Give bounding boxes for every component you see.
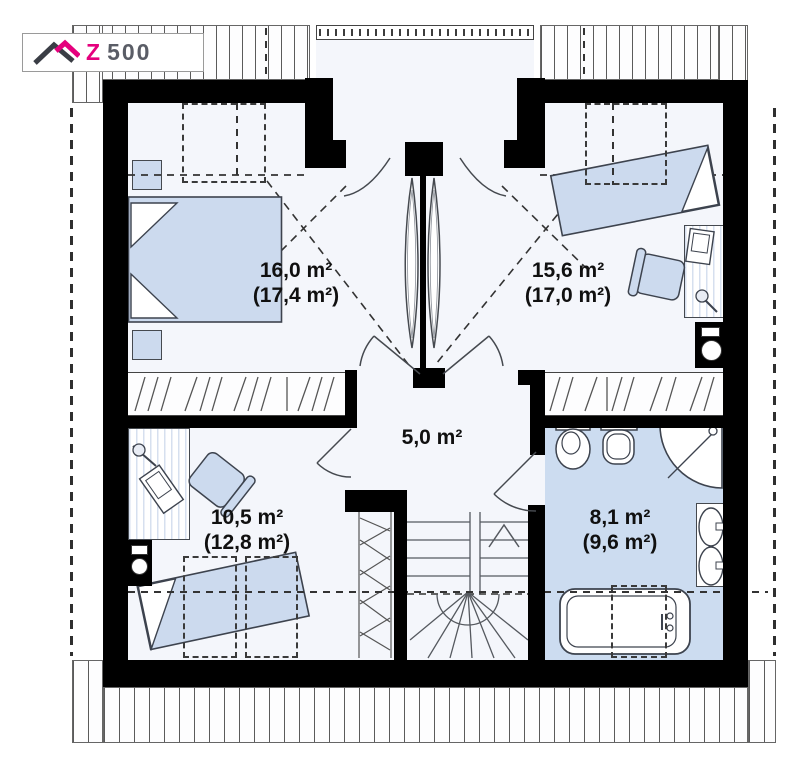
door-leaf-bathroom <box>494 452 536 494</box>
room-label-bedroom-bottom: 10,5 m² (12,8 m²) <box>167 505 327 555</box>
logo-z: Z <box>86 41 101 64</box>
area-with-slopes: (12,8 m²) <box>167 530 327 555</box>
door-swing-bedroom-bottom <box>317 463 351 477</box>
door-swing-dormer-left <box>344 158 390 196</box>
door-leaf-bedroom-right <box>443 336 489 374</box>
area-value: 16,0 m² <box>216 258 376 283</box>
area-with-slopes: (9,6 m²) <box>540 530 700 555</box>
z500-logo: Z500 <box>22 33 204 72</box>
area-with-slopes: (17,4 m²) <box>216 283 376 308</box>
logo-500: 500 <box>107 41 151 64</box>
door-swing-bedroom-left <box>360 336 374 366</box>
area-value: 15,6 m² <box>488 258 648 283</box>
room-label-bathroom: 8,1 m² (9,6 m²) <box>540 505 700 555</box>
door-swing-bathroom <box>494 494 536 511</box>
door-swing-dormer-right <box>460 158 506 196</box>
doors-layer <box>0 0 800 759</box>
floor-plan: 16,0 m² (17,4 m²) 15,6 m² (17,0 m²) 5,0 … <box>0 0 800 759</box>
room-label-bedroom-right: 15,6 m² (17,0 m²) <box>488 258 648 308</box>
area-value: 5,0 m² <box>372 425 492 450</box>
door-swing-bedroom-right <box>489 336 503 366</box>
area-value: 8,1 m² <box>540 505 700 530</box>
room-label-bedroom-left: 16,0 m² (17,4 m²) <box>216 258 376 308</box>
door-leaf-bedroom-bottom <box>317 429 351 463</box>
area-value: 10,5 m² <box>167 505 327 530</box>
area-with-slopes: (17,0 m²) <box>488 283 648 308</box>
room-label-hallway: 5,0 m² <box>372 425 492 450</box>
roof-icon <box>32 39 80 67</box>
